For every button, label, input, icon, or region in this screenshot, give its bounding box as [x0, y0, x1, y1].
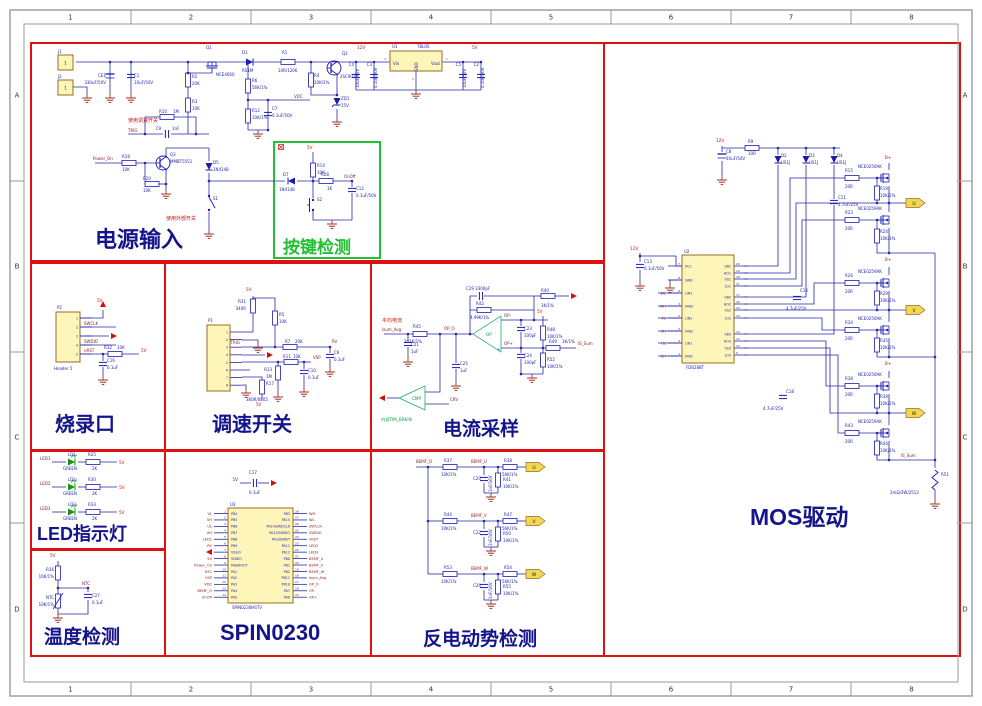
schematic-label: C16	[107, 358, 115, 363]
schematic-label: 0.1uF	[308, 375, 320, 380]
pin-number: 1	[678, 352, 680, 356]
resistor-symbol	[319, 179, 333, 184]
schematic-label: BEMF_V	[471, 513, 487, 518]
schematic-label: R37	[444, 458, 452, 463]
wire	[744, 205, 834, 334]
pin-number: 5	[76, 352, 78, 356]
schematic-label: Vout	[431, 61, 440, 66]
net-label: OP+	[309, 596, 317, 600]
schematic-label: R30	[88, 477, 96, 482]
resistor-symbol	[845, 281, 859, 286]
schematic-label: 4.7uF/25V	[763, 406, 784, 411]
resistor-symbol	[845, 328, 859, 333]
schematic-label: R6	[252, 78, 258, 83]
resistor-symbol	[160, 115, 174, 120]
schematic-label: LED2	[40, 481, 51, 486]
schematic-label: R39	[880, 394, 888, 399]
pin-number: 19	[736, 269, 740, 273]
pushbutton-symbol	[312, 209, 314, 211]
schematic-label: 10K	[117, 345, 125, 350]
schematic-label: OP-	[504, 313, 511, 318]
schematic-label: R26	[845, 273, 853, 278]
pin-number: 13	[222, 587, 226, 591]
section-title-power: 电源输入	[95, 222, 183, 254]
pin-number: 5	[226, 361, 228, 365]
pin-number: 14	[736, 330, 740, 334]
schematic-label: Q2	[342, 51, 348, 56]
pin-number: 5	[224, 535, 226, 539]
schematic-label: 平均电流	[382, 317, 402, 324]
section-title-current: 电流采样	[443, 414, 519, 441]
schematic-label: 1K/1%	[562, 339, 575, 344]
schematic-label: C10	[308, 368, 316, 373]
schematic-label: 3	[384, 57, 386, 61]
schematic-label: R23	[845, 210, 853, 215]
wire	[889, 228, 935, 253]
pin-name: HIN3	[685, 304, 693, 308]
transistor-symbol	[160, 165, 167, 170]
pin-name: PB2	[284, 570, 290, 574]
junction-dot	[805, 147, 808, 150]
junction-dot	[439, 333, 442, 336]
resistor-symbol	[745, 146, 759, 151]
wire	[425, 334, 440, 392]
junction-dot	[876, 309, 879, 312]
schematic-label: R33	[88, 502, 96, 507]
resistor-symbol	[145, 182, 159, 187]
junction-dot	[310, 61, 313, 64]
junction-dot	[888, 202, 891, 205]
wire	[253, 298, 275, 311]
power-arrow-icon	[206, 549, 212, 555]
junction-dot	[165, 183, 168, 186]
junction-dot	[144, 162, 147, 165]
frame-col-label: 3	[309, 686, 313, 694]
net-label: VH	[661, 329, 666, 333]
junction-dot	[888, 356, 891, 359]
schematic-label: C24	[524, 353, 532, 358]
schematic-label: 12V	[716, 138, 724, 143]
junction-dot	[208, 180, 211, 183]
schematic-label: J2	[57, 74, 62, 79]
junction-dot	[277, 361, 280, 364]
section-title-key: 按键检测	[283, 233, 351, 258]
schematic-label: R2	[192, 74, 198, 79]
schematic-label: C4	[349, 62, 355, 67]
schematic-label: 100pF	[524, 333, 537, 338]
schematic-label: RS1M	[242, 68, 254, 73]
junction-dot	[876, 282, 879, 285]
junction-dot	[455, 333, 458, 336]
schematic-label: 2K	[92, 466, 98, 471]
schematic-label: R24	[880, 229, 888, 234]
wire	[73, 87, 87, 94]
schematic-label: R12	[252, 108, 260, 113]
schematic-label: C12	[356, 186, 364, 191]
schematic-label: C20	[473, 476, 481, 481]
pin-name: PA13/SWDIO	[269, 531, 290, 535]
pin-number: 1	[226, 330, 228, 334]
schematic-label: P1	[208, 318, 213, 323]
schematic-label: 10R/1206	[278, 68, 298, 73]
schematic-label: R15	[845, 168, 853, 173]
frame-row-label: D	[14, 606, 19, 614]
led-symbol	[68, 484, 75, 491]
schematic-label: OnOff	[344, 174, 356, 179]
pin-number: 8	[678, 276, 680, 280]
junction-dot	[483, 520, 486, 523]
mosfet-symbol	[885, 219, 888, 222]
zener-symbol	[332, 105, 334, 107]
pin-name: HIN2	[685, 329, 693, 333]
pin-name: PA15	[282, 518, 290, 522]
schematic-label: LED3	[40, 506, 51, 511]
schematic-label: 5V	[256, 402, 262, 407]
schematic-label: US1J	[781, 160, 790, 165]
schematic-label: 20R	[845, 226, 853, 231]
pin-number: 9	[736, 351, 738, 355]
schematic-label: 10uF/50V	[726, 156, 745, 161]
schematic-label: 0.1uF	[249, 490, 261, 495]
schematic-label: 5V	[246, 287, 252, 292]
junction-dot	[329, 346, 332, 349]
schematic-label: 5V	[97, 298, 103, 303]
schematic-label: 2	[412, 77, 414, 81]
pin-number: 8	[226, 384, 228, 388]
schematic-label: 1	[64, 61, 67, 67]
schematic-label: C27	[92, 593, 100, 598]
schematic-label: R9	[748, 139, 754, 144]
junction-dot	[130, 61, 133, 64]
pin-name: VCC	[685, 264, 693, 268]
section-title-spin: SPIN0230	[220, 620, 320, 646]
schematic-label: R19	[880, 186, 888, 191]
pin-number: 19	[295, 567, 299, 571]
wire	[242, 385, 246, 389]
schematic-label: C7	[272, 106, 278, 111]
junction-dot	[497, 520, 500, 523]
net-label: 5V	[207, 557, 212, 561]
junction-dot	[520, 319, 523, 322]
frame-col-label: 7	[789, 14, 793, 22]
schematic-label: 0.1uF/50V	[644, 266, 665, 271]
frame-col-label: 5	[549, 686, 553, 694]
schematic-label: 5V	[232, 477, 238, 482]
net-label: BEMF_W	[309, 570, 325, 574]
junction-dot	[373, 61, 376, 64]
schematic-label: 4.7uF/25V	[786, 306, 807, 311]
schematic-label: 20K/1%	[314, 80, 330, 85]
wire	[670, 280, 682, 284]
pin-number: 12	[736, 344, 740, 348]
net-label: Power_On	[194, 563, 212, 567]
mosfet-symbol	[885, 385, 888, 388]
schematic-label: 10K	[192, 106, 200, 111]
schematic-label: U1	[392, 44, 398, 49]
schematic-label: 1uF	[411, 349, 419, 354]
schematic-label: LD2	[68, 477, 76, 482]
schematic-label: CRV	[450, 397, 458, 402]
net-label: OnOff	[202, 596, 213, 600]
pin-number: 20	[295, 561, 299, 565]
pin-number: 26	[295, 522, 299, 526]
schematic-label: Q1	[206, 45, 212, 50]
junction-dot	[497, 573, 500, 576]
pin-name: VB1	[724, 264, 731, 268]
junction-dot	[187, 61, 190, 64]
schematic-label: 10K/1%	[503, 591, 519, 596]
pin-number: 15	[295, 593, 299, 597]
pin-name: VS1	[725, 277, 731, 281]
pin-name: LO2	[725, 316, 731, 320]
net-port-label: U	[532, 465, 535, 471]
resistor-symbol	[443, 572, 457, 577]
schematic-label: R40	[541, 288, 549, 293]
net-label: UH	[661, 354, 667, 358]
net-label: VL	[208, 512, 212, 516]
schematic-label: US1J	[809, 160, 818, 165]
resistor-symbol	[875, 441, 880, 455]
junction-dot	[876, 177, 879, 180]
pin-name: PA2	[231, 576, 237, 580]
schematic-label: NCE0259AK	[858, 372, 882, 377]
switch-symbol	[208, 209, 210, 211]
schematic-label: LD3	[68, 502, 76, 507]
frame-col-label: 8	[909, 14, 913, 22]
schematic-label: C14	[800, 288, 808, 293]
wire	[744, 165, 778, 266]
schematic-label: R13	[264, 367, 272, 372]
pin-name: PB5	[231, 518, 237, 522]
pin-name: PB6	[231, 525, 237, 529]
resistor-symbol	[311, 163, 316, 177]
schematic-label: R38	[845, 376, 853, 381]
schematic-label: 1N4148	[213, 167, 229, 172]
schematic-label: R44	[880, 441, 888, 446]
schematic-label: 5V	[141, 348, 147, 353]
schematic-label: R10	[159, 109, 167, 114]
pin-number: 1	[76, 316, 78, 320]
pin-name: GND	[685, 278, 693, 282]
junction-dot	[639, 255, 642, 258]
resistor-symbol	[246, 109, 251, 123]
junction-dot	[934, 356, 937, 359]
schematic-label: 5V	[119, 460, 125, 465]
pin-number: 6	[678, 289, 680, 293]
pin-number: 10	[736, 314, 740, 318]
pin-name: PB0	[284, 557, 290, 561]
pin-number: 14	[222, 593, 226, 597]
schematic-label: R18	[122, 154, 130, 159]
schematic-label: D4	[837, 153, 843, 158]
schematic-label: 1	[446, 57, 448, 61]
schematic-label: Header 5	[54, 366, 73, 371]
pin-name: PA12	[282, 550, 290, 554]
junction-dot	[267, 129, 270, 132]
schematic-label: 1nF/16V	[488, 582, 493, 599]
resistor-symbol	[875, 338, 880, 352]
schematic-label: C8	[726, 149, 732, 154]
junction-dot	[483, 573, 486, 576]
schematic-label: 2mΩ/3W/2512	[890, 490, 919, 495]
ic-ref: U2	[684, 249, 690, 254]
pin-number: 5	[678, 314, 680, 318]
resistor-symbol	[503, 465, 517, 470]
schematic-label: R52	[547, 357, 555, 362]
frame-row-label: B	[963, 263, 968, 271]
schematic-label: VSP	[313, 355, 321, 360]
frame-row-label: D	[962, 606, 967, 614]
resistor-symbol	[443, 465, 457, 470]
junction-dot	[303, 361, 306, 364]
schematic-label: S1	[213, 196, 219, 201]
schematic-label: 1nF/16V	[488, 529, 493, 546]
junction-dot	[336, 94, 339, 97]
schematic-label: 330uF/50V	[84, 80, 106, 85]
frame-row-label: C	[15, 434, 20, 442]
resistor-symbol	[260, 380, 265, 394]
power-arrow-icon	[111, 333, 117, 339]
schematic-label: 1uF	[460, 368, 468, 373]
schematic-label: J1	[57, 49, 62, 54]
schematic-label: nRST	[84, 348, 95, 353]
schematic-label: OP+	[504, 341, 513, 346]
schematic-label: BEMF_W	[471, 566, 488, 571]
schematic-label: NTC	[82, 581, 90, 586]
pin-name: LIN1	[685, 341, 692, 345]
resistor-symbol	[845, 218, 859, 223]
mosfet-symbol	[885, 177, 888, 180]
schematic-label: Vin	[393, 61, 400, 66]
schematic-label: 100pF	[524, 360, 537, 365]
frame-col-label: 5	[549, 14, 553, 22]
schematic-label: R44	[444, 512, 452, 517]
schematic-label: D2	[781, 153, 787, 158]
junction-dot	[833, 147, 836, 150]
schematic-label: R53	[444, 565, 452, 570]
junction-dot	[247, 99, 250, 102]
schematic-label: LED1	[40, 456, 51, 461]
junction-dot	[144, 133, 147, 136]
schematic-label: C22	[473, 530, 481, 535]
schematic-label: Isum_Avg	[382, 327, 402, 332]
schematic-label: 2K	[92, 491, 98, 496]
net-label: SWDIO	[309, 531, 322, 535]
schematic-label: 0.1uF/50V	[272, 113, 293, 118]
schematic-label: R32	[104, 345, 112, 350]
junction-dot	[876, 432, 879, 435]
section-title-led: LED指示灯	[37, 520, 127, 546]
resistor-symbol	[108, 352, 122, 357]
schematic-label: 20R	[845, 439, 853, 444]
resistor-symbol	[875, 186, 880, 200]
schematic-label: 56K/1%	[252, 85, 268, 90]
schematic-label: LD1	[68, 452, 76, 457]
junction-dot	[427, 520, 430, 523]
pin-name: PB1	[284, 563, 290, 567]
pin-number: 2	[76, 325, 78, 329]
resistor-symbol	[86, 510, 100, 515]
pin-number: 10	[222, 567, 226, 571]
net-label: RV	[207, 544, 212, 548]
schematic-label: NCE4060	[216, 72, 235, 77]
net-label: OP_O	[309, 583, 319, 587]
power-arrow-icon	[271, 480, 277, 486]
resistor-symbol	[281, 60, 295, 65]
pin-number: 4	[226, 353, 228, 357]
junction-dot	[267, 99, 270, 102]
pin-number: 28	[295, 509, 299, 513]
junction-dot	[876, 385, 879, 388]
schematic-label: R42	[476, 301, 484, 306]
junction-dot	[876, 202, 879, 205]
resistor-symbol	[496, 473, 501, 487]
schematic-label: S2	[317, 197, 323, 202]
junction-dot	[427, 466, 430, 469]
pin-name: PA10/NRST	[272, 538, 291, 542]
net-port-label: W	[912, 411, 917, 417]
schematic-label: TRIG	[229, 340, 240, 345]
pin-name: HIN1	[685, 354, 693, 358]
junction-dot	[57, 587, 60, 590]
schematic-label: 使用调速开关	[128, 117, 158, 124]
pin-name: LO3	[725, 353, 731, 357]
pin-number: 18	[295, 574, 299, 578]
resistor-symbol	[276, 366, 281, 380]
schematic-label: C9	[156, 126, 162, 131]
schematic-label: R49	[549, 339, 557, 344]
switch-symbol	[208, 195, 210, 197]
wire	[744, 178, 845, 273]
schematic-label: R14	[317, 163, 325, 168]
junction-dot	[109, 61, 112, 64]
pin-name: PA3	[231, 583, 237, 587]
schematic-label: SWDIO	[84, 339, 98, 344]
net-label: UL	[207, 525, 212, 529]
schematic-label: C17	[249, 470, 257, 475]
junction-dot	[247, 61, 250, 64]
schematic-label: 10K	[143, 188, 151, 193]
schematic-label: R36	[46, 567, 54, 572]
diode-symbol	[206, 163, 213, 170]
schematic-label: 78L05	[417, 44, 430, 49]
power-arrow-icon	[571, 293, 577, 299]
resistor-symbol	[875, 229, 880, 243]
schematic-label: 10K/1%	[880, 448, 896, 453]
schematic-label: 5V	[307, 145, 313, 150]
schematic-label: R34	[845, 320, 853, 325]
schematic-label: 20K	[192, 81, 200, 86]
schematic-label: 10K/1%	[547, 364, 563, 369]
resistor-symbol	[541, 353, 546, 367]
junction-dot	[497, 466, 500, 469]
frame-col-label: 8	[909, 686, 913, 694]
junction-dot	[520, 373, 523, 376]
frame-col-label: 1	[68, 686, 72, 694]
section-title-burn: 烧录口	[55, 408, 115, 437]
schematic-label: 20R	[845, 336, 853, 341]
schematic-label: 10K/1%	[441, 472, 457, 477]
section-title-temp: 温度检测	[44, 622, 120, 649]
resistor-symbol	[122, 161, 136, 166]
pin-number: 8	[224, 554, 226, 558]
schematic-label: 10K/1%	[39, 574, 55, 579]
schematic-label: 1M	[266, 374, 273, 379]
schematic-label: 0.1uF/50V	[356, 193, 377, 198]
schematic-label: R28	[321, 172, 329, 177]
schematic-label: R50	[503, 531, 511, 536]
diode-symbol	[288, 178, 295, 185]
